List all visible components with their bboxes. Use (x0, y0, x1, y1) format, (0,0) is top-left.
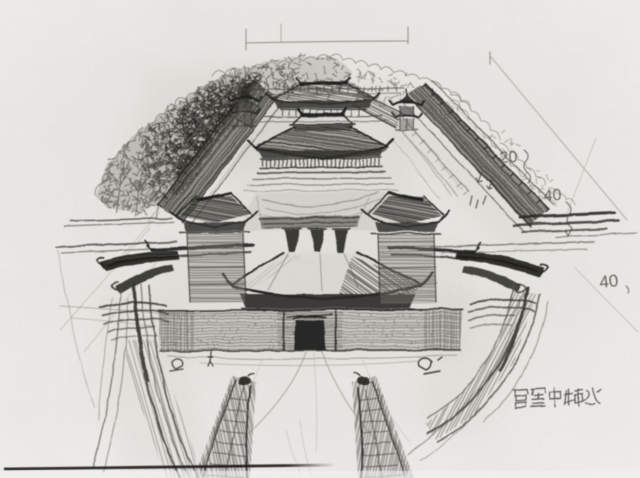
svg-text:40: 40 (543, 187, 562, 205)
svg-text:20: 20 (499, 149, 518, 167)
svg-text:40: 40 (598, 271, 619, 292)
